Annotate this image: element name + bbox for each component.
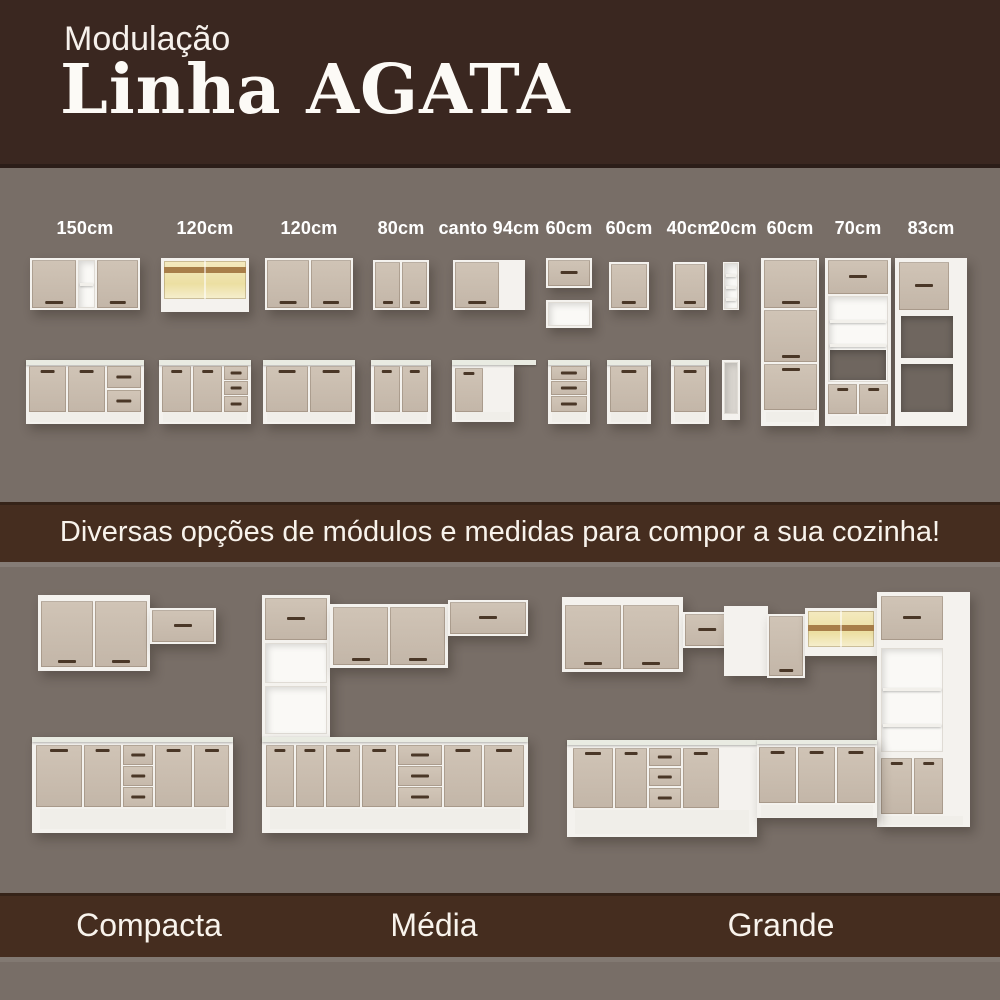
cabinet-door — [764, 310, 817, 362]
cabinet-door — [266, 366, 308, 412]
plinth — [456, 412, 510, 420]
cabinet-door — [32, 260, 76, 308]
cabinet-door — [375, 262, 400, 308]
cabinet-door — [548, 260, 590, 286]
module-80cm: 80cm — [371, 168, 431, 502]
plinth — [761, 805, 873, 817]
cabinet-door — [685, 614, 729, 646]
cabinet-door — [615, 748, 647, 808]
module-20cm-shelf: 20cm — [722, 168, 740, 502]
module-size-label: 20cm — [710, 218, 752, 239]
cabinet-drawer — [551, 381, 587, 395]
countertop — [371, 360, 431, 365]
countertop — [548, 360, 590, 365]
cabinet-door — [859, 384, 888, 414]
plinth — [375, 412, 427, 422]
cabinet-drawer — [107, 390, 141, 412]
cabinet-door — [374, 366, 400, 412]
base-cabinet — [371, 360, 431, 424]
cabinet-door — [623, 605, 679, 669]
plinth — [766, 412, 814, 422]
cabinet-drawer — [224, 381, 248, 395]
countertop — [607, 360, 651, 365]
cabinet-door — [674, 366, 706, 412]
tall-oven-tower — [825, 258, 891, 426]
base-cabinet — [671, 360, 709, 424]
glass-door — [164, 261, 246, 299]
plinth — [675, 412, 705, 422]
open-niche — [548, 302, 590, 326]
cabinet-door — [675, 264, 705, 308]
base-cabinet-run — [757, 740, 877, 818]
module-40cm: 40cm — [671, 168, 709, 502]
cabinet-door — [193, 366, 222, 412]
wall-shelf-unit — [723, 262, 739, 310]
cabinet-door — [610, 366, 648, 412]
cabinet-door — [455, 368, 483, 412]
module-150cm: 150cm — [26, 168, 144, 502]
open-niche — [724, 263, 738, 309]
cabinet-door — [29, 366, 66, 412]
countertop — [671, 360, 709, 365]
catalog-image: Modulação Linha AGATA 150cm 120cm — [0, 0, 1000, 1000]
cabinet-door — [97, 260, 138, 308]
cabinet-drawer — [649, 788, 681, 808]
appliance-opening — [901, 316, 953, 358]
countertop — [159, 360, 251, 365]
base-cabinet-corner — [452, 360, 514, 422]
cabinet-drawer — [551, 366, 587, 380]
cabinet-door — [162, 366, 191, 412]
cabinet-door — [837, 747, 875, 803]
cabinet-door — [683, 748, 719, 808]
cabinet-door — [455, 262, 499, 308]
wall-cabinet — [609, 262, 649, 310]
cabinet-door — [573, 748, 613, 808]
shelf-line — [726, 298, 736, 301]
module-canto-94cm: canto 94cm — [450, 168, 528, 502]
module-60cm-door: 60cm — [607, 168, 651, 502]
tall-tower — [877, 592, 970, 827]
glass-divider — [204, 261, 206, 299]
promo-text: Diversas opções de módulos e medidas par… — [60, 516, 940, 548]
promo-banner: Diversas opções de módulos e medidas par… — [0, 502, 1000, 562]
cabinet-door — [881, 596, 943, 640]
wall-cabinet — [373, 260, 429, 310]
cabinet-door — [769, 616, 803, 676]
plinth — [611, 412, 647, 422]
plinth — [883, 816, 963, 825]
corner-panel — [724, 606, 768, 676]
cabinet-door — [828, 260, 888, 294]
cabinet-door — [402, 262, 427, 308]
wall-cabinet — [30, 258, 140, 310]
plinth — [267, 412, 351, 422]
cabinet-door — [828, 384, 857, 414]
cabinet-door — [764, 260, 817, 308]
cabinet-drawer — [649, 768, 681, 786]
kitchen-names-band: Compacta Média Grande — [0, 893, 1000, 957]
open-niche — [724, 362, 738, 414]
module-size-label: canto 94cm — [438, 218, 540, 239]
cabinet-door — [68, 366, 105, 412]
kitchen-name-compacta: Compacta — [76, 893, 222, 957]
wall-cabinet — [767, 614, 805, 678]
plinth — [163, 412, 247, 422]
shelf-line — [830, 320, 886, 323]
glass-door — [808, 611, 874, 647]
glass-divider — [840, 611, 842, 647]
module-size-label: 150cm — [14, 218, 156, 239]
cabinet-drawer — [649, 748, 681, 766]
base-cabinet — [26, 360, 144, 424]
module-70cm-tall: 70cm — [825, 168, 891, 502]
appliance-opening — [901, 364, 953, 412]
cabinet-door — [759, 747, 796, 803]
module-size-label: 120cm — [147, 218, 263, 239]
kitchen-grande — [0, 562, 1000, 893]
open-niche — [881, 648, 943, 752]
open-wall-box — [546, 300, 592, 328]
cabinet-door — [267, 260, 309, 308]
kitchens-section — [0, 562, 1000, 893]
cabinet-door — [402, 366, 428, 412]
cabinet-drawer — [107, 366, 141, 388]
plinth — [830, 416, 886, 424]
plinth — [575, 810, 749, 834]
cabinet-door — [611, 264, 647, 308]
cabinet-door — [881, 758, 912, 814]
cabinet-door — [565, 605, 621, 669]
cabinet-door — [914, 758, 943, 814]
module-size-label: 83cm — [883, 218, 979, 239]
shelf-line — [883, 688, 941, 691]
wall-cabinet-glass — [161, 258, 249, 312]
base-shelf-unit — [722, 360, 740, 420]
shelf-line — [726, 286, 736, 289]
cabinet-drawer — [224, 396, 248, 412]
module-60cm-flip: 60cm — [545, 168, 593, 502]
cabinet-door — [764, 364, 817, 410]
countertop — [757, 740, 877, 744]
base-cabinet — [263, 360, 355, 424]
wall-cabinet — [673, 262, 707, 310]
modules-section: 150cm 120cm — [0, 168, 1000, 502]
wall-cabinet-corner — [453, 260, 525, 310]
wall-cabinet-flip — [546, 258, 592, 288]
countertop — [26, 360, 144, 365]
header: Modulação Linha AGATA — [0, 0, 1000, 168]
base-cabinet-drawers — [548, 360, 590, 424]
plinth — [552, 412, 586, 422]
module-size-label: 120cm — [251, 218, 367, 239]
wall-cabinet — [562, 597, 683, 672]
header-title: Linha AGATA — [60, 50, 571, 130]
tall-fridge-surround — [895, 258, 967, 426]
kitchen-name-media: Média — [390, 893, 477, 957]
module-120cm: 120cm — [263, 168, 355, 502]
countertop — [263, 360, 355, 365]
countertop — [452, 360, 536, 365]
module-size-label: 60cm — [595, 218, 663, 239]
open-niche — [78, 260, 95, 308]
kitchen-name-grande: Grande — [728, 893, 835, 957]
base-cabinet — [159, 360, 251, 424]
shelf-line — [883, 724, 941, 727]
shelf-line — [80, 283, 93, 286]
base-cabinet — [607, 360, 651, 424]
module-size-label: 80cm — [359, 218, 443, 239]
wall-cabinet — [265, 258, 353, 310]
tall-cabinet — [761, 258, 819, 426]
shelf-line — [726, 274, 736, 277]
cabinet-door — [899, 262, 949, 310]
cabinet-drawer — [551, 396, 587, 412]
shelf-line — [830, 344, 886, 347]
wall-cabinet-glass — [805, 608, 877, 656]
plinth — [30, 412, 140, 422]
cabinet-door — [798, 747, 835, 803]
module-83cm-tall: 83cm — [895, 168, 967, 502]
cabinet-drawer — [224, 366, 248, 380]
cabinet-door — [310, 366, 352, 412]
module-120cm-glass: 120cm — [159, 168, 251, 502]
module-60cm-tall: 60cm — [761, 168, 819, 502]
cabinet-door — [311, 260, 351, 308]
base-cabinet-run — [567, 740, 757, 837]
countertop — [567, 740, 757, 745]
appliance-opening — [830, 350, 886, 380]
